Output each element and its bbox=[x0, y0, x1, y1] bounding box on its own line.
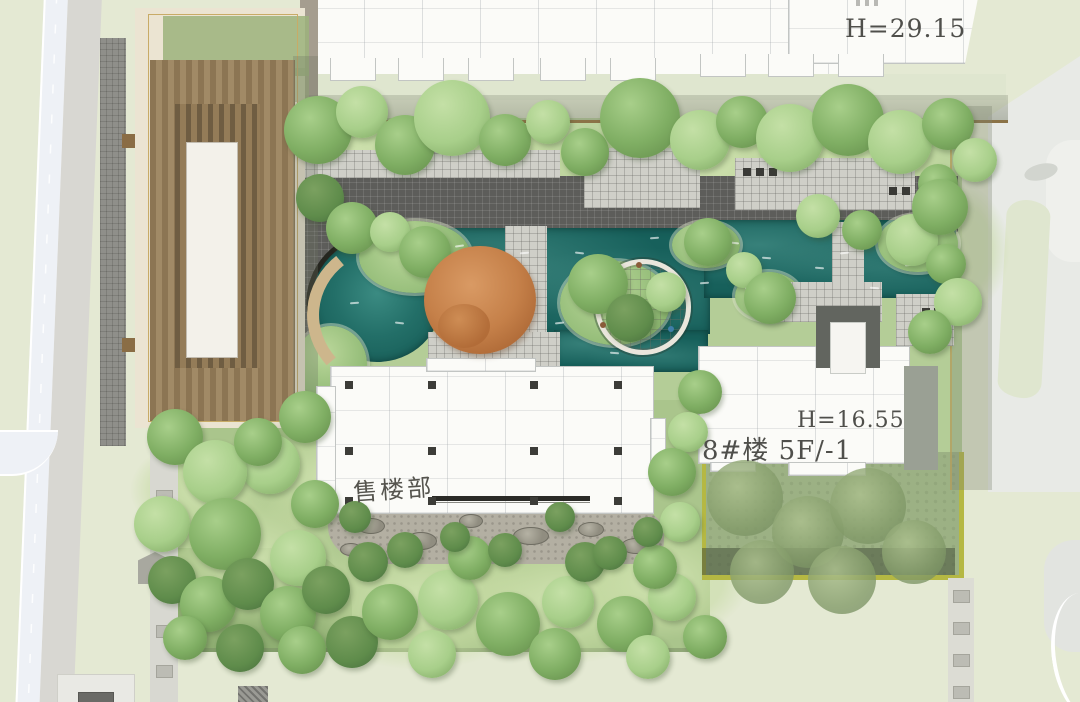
tree-symbol bbox=[545, 502, 575, 532]
tree-symbol bbox=[648, 448, 696, 496]
tree-symbol bbox=[908, 310, 952, 354]
tree-symbol bbox=[842, 210, 882, 250]
tree-symbol bbox=[542, 576, 594, 628]
tree-symbol bbox=[683, 615, 727, 659]
tree-symbol bbox=[134, 496, 190, 552]
tree-symbol bbox=[796, 194, 840, 238]
tree-symbol bbox=[291, 480, 339, 528]
tree-symbol bbox=[646, 272, 686, 312]
tree-symbol bbox=[600, 78, 680, 158]
tree-symbol bbox=[362, 584, 418, 640]
tree-symbol bbox=[561, 128, 609, 176]
tree-symbol bbox=[808, 546, 876, 614]
building8-name-label: 8#楼 5F/-1 bbox=[702, 430, 852, 467]
tree-symbol bbox=[278, 626, 326, 674]
tree-symbol bbox=[163, 616, 207, 660]
tree-symbol bbox=[526, 100, 570, 144]
tree-symbol bbox=[882, 520, 946, 584]
north-building-height-label: H=29.15 bbox=[845, 14, 966, 43]
site-plan-canvas: H=29.15 H=16.55 8#楼 5F/-1 售楼部 bbox=[0, 0, 1080, 702]
tree-symbol bbox=[440, 522, 470, 552]
tree-symbol bbox=[626, 635, 670, 679]
tree-symbol bbox=[279, 391, 331, 443]
tree-symbol bbox=[684, 218, 732, 266]
trees-layer bbox=[0, 0, 1080, 702]
tree-symbol bbox=[633, 517, 663, 547]
tree-symbol bbox=[479, 114, 531, 166]
tree-symbol bbox=[216, 624, 264, 672]
tree-symbol bbox=[953, 138, 997, 182]
orange-feature-tree-understory bbox=[438, 304, 490, 348]
tree-symbol bbox=[234, 418, 282, 466]
tree-symbol bbox=[529, 628, 581, 680]
tree-symbol bbox=[744, 272, 796, 324]
tree-symbol bbox=[606, 294, 654, 342]
tree-symbol bbox=[660, 502, 700, 542]
tree-symbol bbox=[912, 179, 968, 235]
tree-symbol bbox=[633, 545, 677, 589]
sales-office-label: 售楼部 bbox=[352, 467, 435, 508]
tree-symbol bbox=[488, 533, 522, 567]
tree-symbol bbox=[678, 370, 722, 414]
tree-symbol bbox=[348, 542, 388, 582]
tree-symbol bbox=[730, 540, 794, 604]
tree-symbol bbox=[302, 566, 350, 614]
tree-symbol bbox=[408, 630, 456, 678]
tree-symbol bbox=[387, 532, 423, 568]
tree-symbol bbox=[593, 536, 627, 570]
